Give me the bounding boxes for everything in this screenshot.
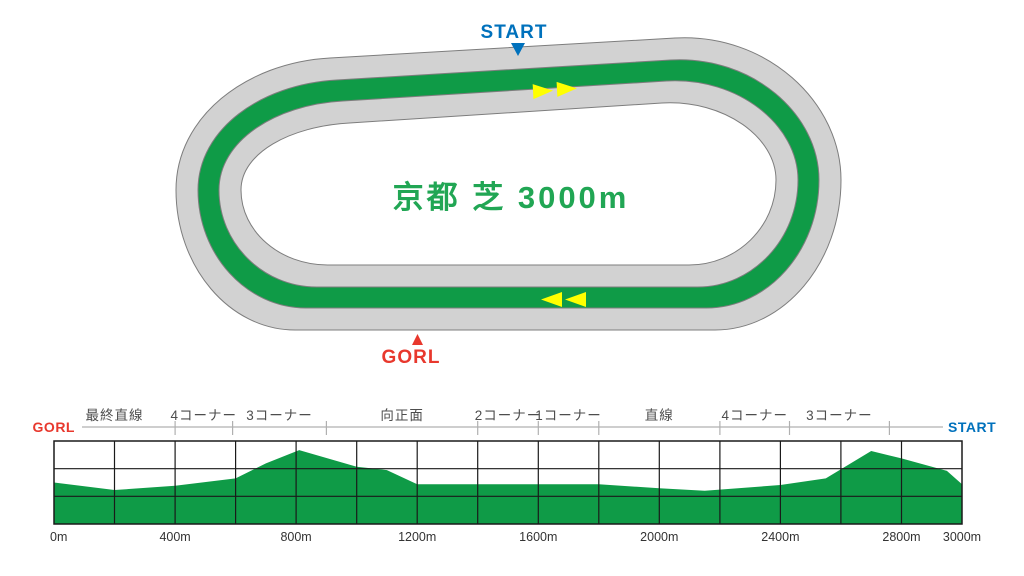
section-label: 最終直線 [86, 408, 144, 423]
chart-goal-label: GORL [33, 419, 75, 435]
section-label: 4コーナー [721, 408, 788, 423]
course-figure: 京都 芝 3000m START GORL 最終直線4コーナー3コーナー向正面2… [0, 0, 1024, 576]
section-label: 1コーナー [535, 408, 602, 423]
section-label: 2コーナー [475, 408, 542, 423]
triangle-up-icon [412, 334, 423, 345]
elevation-area [54, 450, 962, 524]
distance-label: 2800m [882, 530, 920, 544]
section-label: 3コーナー [806, 408, 873, 423]
section-label: 向正面 [380, 408, 424, 423]
goal-marker: GORL [382, 334, 441, 368]
goal-label: GORL [382, 347, 441, 368]
chart-start-label: START [948, 419, 996, 435]
distance-label: 3000m [943, 530, 981, 544]
elevation-profile-chart: 最終直線4コーナー3コーナー向正面2コーナー1コーナー直線4コーナー3コーナー0… [50, 408, 981, 544]
course-title: 京都 芝 3000m [393, 180, 630, 215]
kyoto-course-diagram: 京都 芝 3000m START GORL 最終直線4コーナー3コーナー向正面2… [0, 0, 1024, 576]
distance-label: 400m [159, 530, 190, 544]
section-label: 直線 [645, 408, 674, 423]
distance-label: 1600m [519, 530, 557, 544]
start-label: START [481, 22, 548, 43]
section-label: 4コーナー [171, 408, 238, 423]
distance-label: 1200m [398, 530, 436, 544]
section-label: 3コーナー [246, 408, 313, 423]
distance-label: 800m [280, 530, 311, 544]
distance-label: 0m [50, 530, 67, 544]
distance-label: 2000m [640, 530, 678, 544]
distance-label: 2400m [761, 530, 799, 544]
